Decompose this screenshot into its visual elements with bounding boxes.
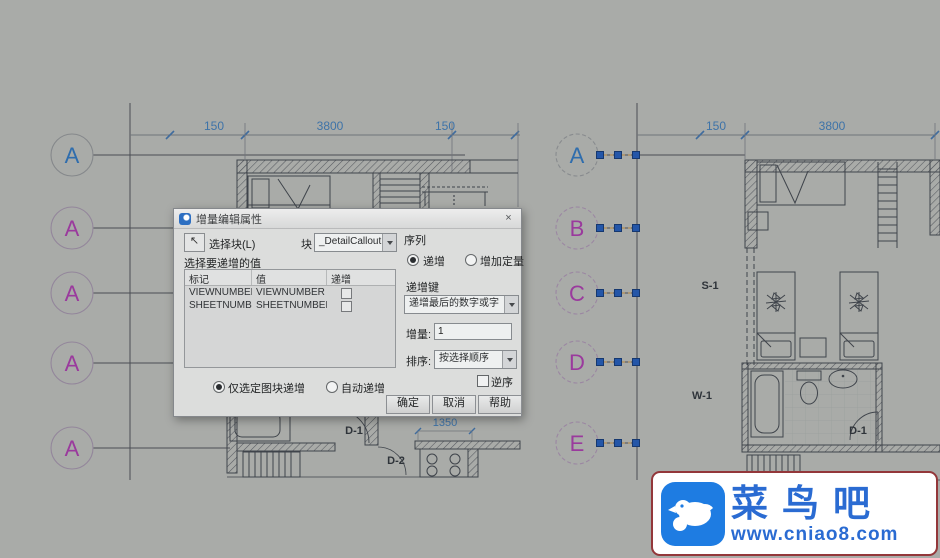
watermark: 菜鸟吧 www.cniao8.com <box>651 471 938 556</box>
row-value: SHEETNUMBER <box>252 299 327 312</box>
increment-radio[interactable] <box>407 254 419 266</box>
block-name-combo[interactable]: _DetailCallout <box>314 233 397 252</box>
app-logo-icon <box>179 213 191 225</box>
grip[interactable] <box>615 225 622 232</box>
attribute-row[interactable]: VIEWNUMBER VIEWNUMBER <box>185 286 395 299</box>
order-combo[interactable]: 按选择顺序 <box>434 350 517 369</box>
cad-canvas: 150 3800 150 <box>0 0 940 558</box>
selection-grips[interactable] <box>597 152 640 447</box>
grid-bubble[interactable]: A <box>51 207 93 249</box>
dim-3800: 3800 <box>819 119 846 133</box>
grid-bubble[interactable]: D <box>556 341 598 383</box>
selected-only-label: 仅选定图块递增 <box>228 380 305 396</box>
right-walls <box>745 160 940 365</box>
auto-increment-radio[interactable] <box>326 381 338 393</box>
right-bathroom <box>742 363 940 452</box>
column-tag: 标记 <box>185 270 252 285</box>
increment-radio-label: 递增 <box>423 253 445 269</box>
chevron-down-icon[interactable] <box>502 351 516 368</box>
attribute-row[interactable]: SHEETNUMBER SHEETNUMBER <box>185 299 395 312</box>
dim-3800: 3800 <box>317 119 344 133</box>
increment-checkbox[interactable] <box>341 301 352 312</box>
grip[interactable] <box>633 359 640 366</box>
grip[interactable] <box>633 290 640 297</box>
grip[interactable] <box>615 359 622 366</box>
block-label: 块 <box>301 236 312 252</box>
left-table <box>422 187 488 206</box>
increment-mode-value: 递增最后的数字或字 <box>409 298 499 309</box>
bubble-letter: E <box>570 431 585 456</box>
bubble-letter: A <box>65 436 80 461</box>
selection-dashes <box>598 155 637 443</box>
grip[interactable] <box>597 225 604 232</box>
watermark-site-url: www.cniao8.com <box>731 525 898 544</box>
grip[interactable] <box>597 152 604 159</box>
label-d1: D-1 <box>849 425 867 437</box>
chevron-down-icon[interactable] <box>504 296 518 313</box>
increment-attribute-dialog: 增量编辑属性 × ↖ 选择块(L) 块 _DetailCallout 选择要递增… <box>173 208 522 417</box>
block-name-value: _DetailCallout <box>319 236 381 247</box>
bubble-letter: C <box>569 281 585 306</box>
bubble-letter: D <box>569 350 585 375</box>
dim-150: 150 <box>706 119 726 133</box>
grip[interactable] <box>597 359 604 366</box>
grid-bubble[interactable]: A <box>51 272 93 314</box>
amount-label: 增量: <box>406 326 431 342</box>
dim-150-left: 150 <box>204 119 224 133</box>
grip[interactable] <box>633 225 640 232</box>
grip[interactable] <box>597 440 604 447</box>
increment-key-label: 递增键 <box>406 279 439 295</box>
ok-button[interactable]: 确定 <box>386 395 430 414</box>
grid-bubble[interactable]: C <box>556 272 598 314</box>
left-bottom-dim-1350: 1350 <box>415 417 475 441</box>
grid-bubble[interactable]: A <box>51 134 93 176</box>
right-grid-bubbles[interactable]: A B C D E <box>556 134 598 464</box>
row-value: VIEWNUMBER <box>252 286 327 299</box>
grid-bubble[interactable]: A <box>51 427 93 469</box>
label-s1: S-1 <box>701 280 718 292</box>
selected-only-radio[interactable] <box>213 381 225 393</box>
left-door-d2-label: D-2 <box>387 455 405 467</box>
grip[interactable] <box>633 440 640 447</box>
add-fixed-radio-label: 增加定量 <box>480 253 524 269</box>
add-fixed-radio[interactable] <box>465 254 477 266</box>
select-block-label: 选择块(L) <box>209 236 255 252</box>
right-ladder <box>878 162 897 248</box>
increment-mode-combo[interactable]: 递增最后的数字或字 <box>404 295 519 314</box>
row-tag: VIEWNUMBER <box>185 286 252 299</box>
left-door-d1-label: D-1 <box>345 425 363 437</box>
auto-increment-label: 自动递增 <box>341 380 385 396</box>
order-label: 排序: <box>406 353 431 369</box>
watermark-site-name: 菜鸟吧 <box>731 485 898 522</box>
bubble-letter: A <box>65 143 80 168</box>
close-icon[interactable]: × <box>501 211 516 226</box>
grip[interactable] <box>615 152 622 159</box>
chevron-down-icon[interactable] <box>382 234 396 251</box>
grid-bubble[interactable]: B <box>556 207 598 249</box>
right-dimensions: 150 3800 <box>637 119 939 159</box>
sequence-group-label: 序列 <box>404 232 426 248</box>
grid-bubble[interactable]: E <box>556 422 598 464</box>
cniao-bird-logo-icon <box>661 482 725 546</box>
grip[interactable] <box>597 290 604 297</box>
column-increment: 递增 <box>327 270 393 285</box>
left-bed <box>248 176 330 212</box>
dim-1350: 1350 <box>433 417 457 429</box>
grid-bubble[interactable]: A <box>556 134 598 176</box>
order-value: 按选择顺序 <box>439 353 489 364</box>
label-w1: W-1 <box>692 390 712 402</box>
column-value: 值 <box>252 270 327 285</box>
grip[interactable] <box>633 152 640 159</box>
pick-block-button[interactable]: ↖ <box>184 233 205 252</box>
grip[interactable] <box>615 440 622 447</box>
reverse-checkbox[interactable] <box>477 375 489 387</box>
bubble-letter: A <box>65 216 80 241</box>
reverse-label: 逆序 <box>491 374 513 390</box>
right-floor-plan: 150 3800 <box>545 95 940 490</box>
increment-checkbox[interactable] <box>341 288 352 299</box>
help-button[interactable]: 帮助 <box>478 395 522 414</box>
left-grid-bubbles[interactable]: A A A A A <box>51 134 93 469</box>
bubble-letter: B <box>570 216 585 241</box>
dialog-title: 增量编辑属性 <box>196 211 496 227</box>
right-single-beds <box>757 272 878 360</box>
left-stairs-top <box>373 173 429 212</box>
list-header: 标记 值 递增 <box>185 270 395 286</box>
amount-input[interactable] <box>434 323 512 340</box>
grid-bubble[interactable]: A <box>51 342 93 384</box>
grip[interactable] <box>615 290 622 297</box>
attribute-list[interactable]: 标记 值 递增 VIEWNUMBER VIEWNUMBER SHEETNUMBE… <box>184 269 396 368</box>
bubble-letter: A <box>65 351 80 376</box>
dim-150-right: 150 <box>435 119 455 133</box>
bubble-letter: A <box>570 143 585 168</box>
cancel-button[interactable]: 取消 <box>432 395 476 414</box>
row-tag: SHEETNUMBER <box>185 299 252 312</box>
bubble-letter: A <box>65 281 80 306</box>
dialog-titlebar[interactable]: 增量编辑属性 × <box>174 209 521 229</box>
